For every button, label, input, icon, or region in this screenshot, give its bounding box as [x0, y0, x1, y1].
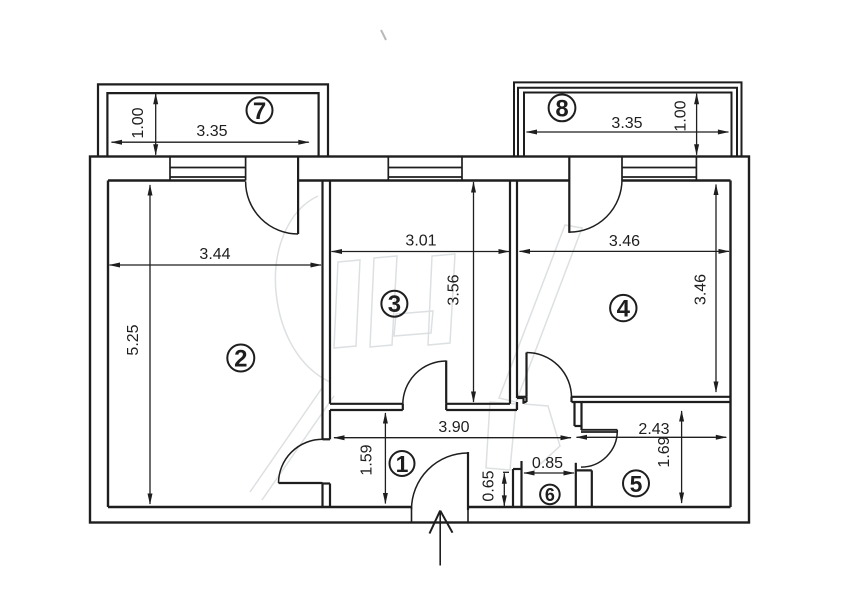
svg-text:2: 2: [234, 346, 247, 373]
svg-text:0.85: 0.85: [532, 455, 563, 472]
svg-text:8: 8: [555, 95, 568, 122]
svg-text:5: 5: [630, 471, 643, 497]
svg-text:1.00: 1.00: [673, 100, 690, 131]
svg-text:1.69: 1.69: [656, 436, 673, 467]
svg-text:4: 4: [617, 296, 631, 323]
svg-text:2.43: 2.43: [638, 421, 669, 438]
svg-text:3.46: 3.46: [693, 274, 710, 305]
svg-text:3.35: 3.35: [196, 123, 227, 140]
svg-text:3: 3: [388, 291, 401, 318]
svg-text:3.90: 3.90: [438, 419, 469, 436]
svg-text:3.35: 3.35: [611, 115, 642, 132]
svg-text:3.01: 3.01: [405, 233, 436, 250]
svg-text:7: 7: [253, 98, 266, 125]
svg-text:1: 1: [396, 451, 409, 477]
svg-text:3.44: 3.44: [199, 246, 230, 263]
svg-text:1.00: 1.00: [130, 107, 147, 138]
svg-text:1.59: 1.59: [359, 444, 376, 475]
svg-text:6: 6: [545, 485, 555, 505]
svg-text:0.65: 0.65: [481, 470, 498, 501]
svg-text:5.25: 5.25: [125, 324, 142, 355]
svg-text:3.56: 3.56: [446, 274, 463, 305]
svg-text:3.46: 3.46: [609, 233, 640, 250]
